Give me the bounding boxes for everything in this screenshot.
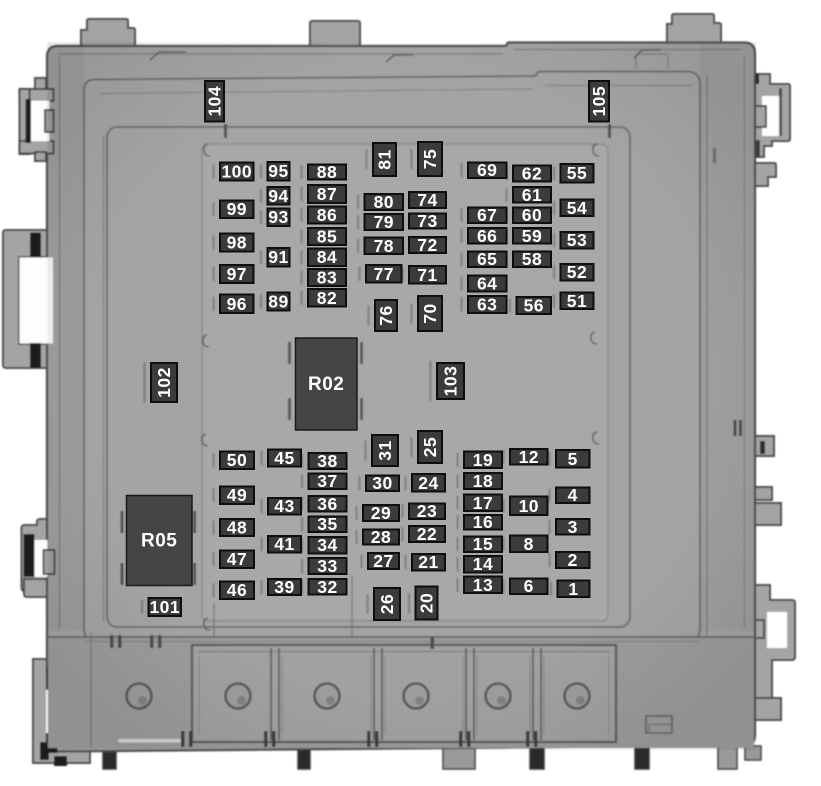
svg-text:87: 87 bbox=[317, 184, 337, 204]
svg-text:60: 60 bbox=[522, 205, 542, 225]
svg-text:88: 88 bbox=[317, 162, 337, 182]
svg-text:43: 43 bbox=[274, 496, 294, 516]
svg-text:77: 77 bbox=[374, 264, 394, 284]
svg-text:36: 36 bbox=[317, 494, 337, 514]
svg-text:3: 3 bbox=[568, 517, 578, 537]
svg-text:28: 28 bbox=[371, 527, 391, 547]
svg-text:86: 86 bbox=[317, 205, 337, 225]
svg-text:72: 72 bbox=[417, 235, 437, 255]
svg-text:63: 63 bbox=[477, 295, 497, 315]
svg-text:93: 93 bbox=[268, 207, 288, 227]
svg-text:103: 103 bbox=[441, 366, 461, 397]
svg-text:46: 46 bbox=[227, 580, 247, 600]
svg-text:30: 30 bbox=[372, 473, 392, 493]
svg-text:97: 97 bbox=[227, 264, 247, 284]
svg-text:27: 27 bbox=[373, 551, 393, 571]
svg-text:67: 67 bbox=[477, 205, 497, 225]
svg-text:70: 70 bbox=[420, 303, 440, 323]
svg-text:91: 91 bbox=[268, 247, 288, 267]
svg-text:1: 1 bbox=[568, 579, 578, 599]
svg-text:10: 10 bbox=[519, 496, 539, 516]
svg-text:78: 78 bbox=[374, 236, 394, 256]
svg-text:79: 79 bbox=[374, 212, 394, 232]
svg-text:20: 20 bbox=[417, 593, 437, 613]
svg-text:8: 8 bbox=[524, 534, 534, 554]
svg-text:12: 12 bbox=[519, 447, 539, 467]
svg-text:94: 94 bbox=[268, 186, 288, 206]
svg-text:65: 65 bbox=[477, 249, 497, 269]
svg-text:39: 39 bbox=[274, 577, 294, 597]
svg-text:4: 4 bbox=[568, 485, 578, 505]
svg-text:26: 26 bbox=[377, 594, 397, 614]
svg-text:83: 83 bbox=[317, 268, 337, 288]
svg-text:101: 101 bbox=[149, 597, 180, 617]
svg-text:34: 34 bbox=[317, 535, 337, 555]
svg-text:75: 75 bbox=[420, 149, 440, 169]
svg-text:37: 37 bbox=[317, 471, 337, 491]
svg-text:55: 55 bbox=[567, 163, 587, 183]
svg-text:104: 104 bbox=[205, 86, 225, 117]
svg-text:100: 100 bbox=[221, 162, 252, 182]
svg-text:82: 82 bbox=[317, 288, 337, 308]
svg-text:71: 71 bbox=[417, 265, 437, 285]
svg-text:21: 21 bbox=[418, 552, 438, 572]
svg-text:74: 74 bbox=[417, 190, 437, 210]
svg-text:41: 41 bbox=[274, 534, 294, 554]
svg-text:52: 52 bbox=[567, 262, 587, 282]
svg-text:49: 49 bbox=[227, 485, 247, 505]
svg-text:81: 81 bbox=[375, 149, 395, 169]
svg-text:5: 5 bbox=[568, 449, 578, 469]
svg-text:80: 80 bbox=[374, 192, 394, 212]
svg-text:95: 95 bbox=[268, 161, 288, 181]
svg-text:99: 99 bbox=[227, 199, 247, 219]
svg-text:76: 76 bbox=[376, 305, 396, 325]
svg-text:25: 25 bbox=[420, 437, 440, 457]
svg-text:13: 13 bbox=[473, 575, 493, 595]
svg-text:23: 23 bbox=[417, 501, 437, 521]
svg-text:53: 53 bbox=[567, 230, 587, 250]
svg-text:96: 96 bbox=[227, 294, 247, 314]
svg-text:48: 48 bbox=[227, 518, 247, 538]
svg-text:51: 51 bbox=[567, 291, 587, 311]
svg-text:14: 14 bbox=[473, 554, 493, 574]
svg-text:2: 2 bbox=[568, 550, 578, 570]
svg-text:105: 105 bbox=[589, 86, 609, 117]
svg-text:19: 19 bbox=[473, 450, 493, 470]
svg-text:32: 32 bbox=[317, 577, 337, 597]
svg-text:102: 102 bbox=[154, 367, 174, 398]
svg-text:47: 47 bbox=[227, 549, 247, 569]
svg-text:89: 89 bbox=[268, 292, 288, 312]
svg-text:31: 31 bbox=[375, 440, 395, 460]
svg-text:24: 24 bbox=[418, 473, 438, 493]
svg-text:15: 15 bbox=[473, 534, 493, 554]
svg-text:59: 59 bbox=[522, 226, 542, 246]
svg-text:45: 45 bbox=[274, 448, 294, 468]
svg-text:85: 85 bbox=[317, 227, 337, 247]
svg-text:29: 29 bbox=[371, 503, 391, 523]
svg-text:R02: R02 bbox=[308, 374, 344, 395]
svg-text:66: 66 bbox=[477, 226, 497, 246]
svg-text:16: 16 bbox=[473, 512, 493, 532]
svg-text:R05: R05 bbox=[141, 531, 177, 552]
svg-text:17: 17 bbox=[473, 493, 493, 513]
svg-text:22: 22 bbox=[417, 524, 437, 544]
svg-text:54: 54 bbox=[567, 198, 587, 218]
svg-text:62: 62 bbox=[522, 164, 542, 184]
svg-text:69: 69 bbox=[477, 160, 497, 180]
svg-text:98: 98 bbox=[227, 233, 247, 253]
svg-text:56: 56 bbox=[524, 296, 544, 316]
svg-text:33: 33 bbox=[317, 556, 337, 576]
svg-text:64: 64 bbox=[477, 274, 497, 294]
svg-text:61: 61 bbox=[522, 185, 542, 205]
svg-text:50: 50 bbox=[227, 450, 247, 470]
svg-text:38: 38 bbox=[317, 451, 337, 471]
svg-text:84: 84 bbox=[317, 247, 337, 267]
svg-text:73: 73 bbox=[417, 211, 437, 231]
svg-text:35: 35 bbox=[317, 514, 337, 534]
svg-text:58: 58 bbox=[522, 249, 542, 269]
svg-text:18: 18 bbox=[473, 471, 493, 491]
svg-text:6: 6 bbox=[524, 576, 534, 596]
